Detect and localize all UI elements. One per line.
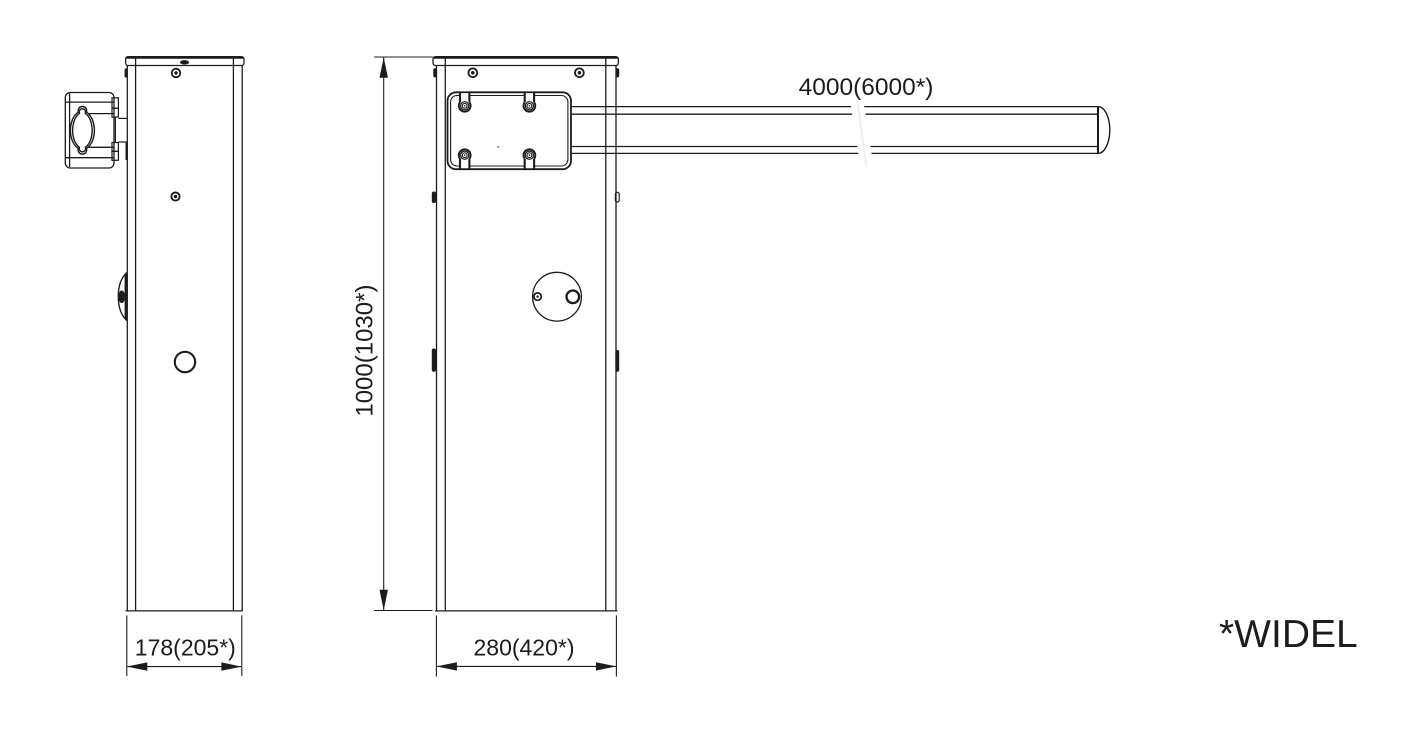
- svg-text:1000(1030*): 1000(1030*): [351, 285, 378, 417]
- svg-text:*WIDEL: *WIDEL: [1219, 613, 1358, 656]
- svg-text:178(205*): 178(205*): [135, 634, 236, 660]
- svg-text:4000(6000*): 4000(6000*): [799, 74, 934, 101]
- svg-text:280(420*): 280(420*): [473, 634, 574, 660]
